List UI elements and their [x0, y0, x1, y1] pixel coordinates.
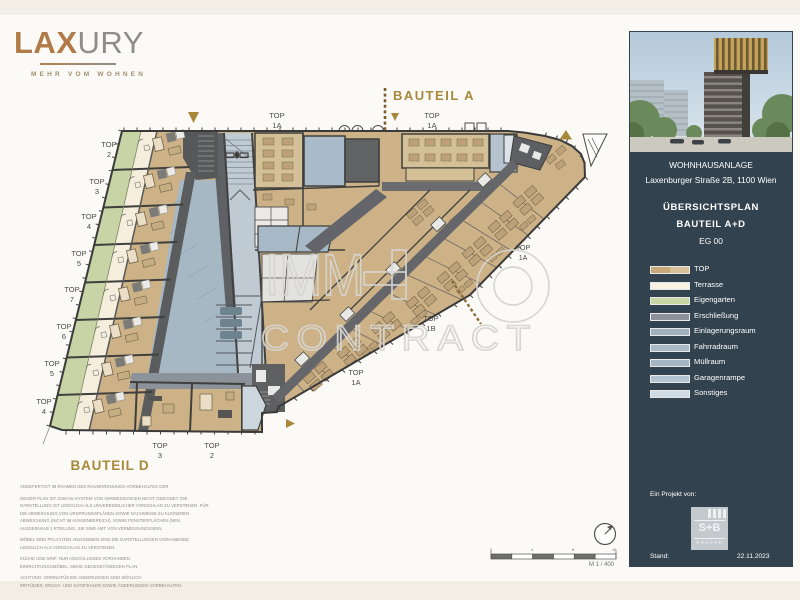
svg-text:2: 2 [107, 150, 111, 159]
svg-text:8: 8 [572, 547, 575, 552]
svg-text:1A: 1A [351, 378, 360, 387]
svg-text:5: 5 [50, 369, 54, 378]
svg-text:TOP: TOP [81, 212, 96, 221]
svg-text:4: 4 [42, 407, 46, 416]
svg-text:TOP: TOP [101, 140, 116, 149]
svg-text:TOP: TOP [348, 368, 363, 377]
svg-text:16: 16 [612, 547, 617, 552]
svg-text:3: 3 [95, 187, 99, 196]
svg-text:TOP: TOP [269, 111, 284, 120]
svg-text:TOP: TOP [89, 177, 104, 186]
svg-text:CONTRACT: CONTRACT [261, 319, 538, 358]
svg-text:7: 7 [70, 295, 74, 304]
svg-text:5: 5 [77, 259, 81, 268]
svg-text:TOP: TOP [424, 111, 439, 120]
svg-text:BAUTEIL D: BAUTEIL D [71, 458, 150, 473]
svg-text:3: 3 [158, 451, 162, 460]
svg-text:0: 0 [490, 547, 493, 552]
svg-text:4: 4 [87, 222, 91, 231]
svg-text:TOP: TOP [44, 359, 59, 368]
svg-text:TOP: TOP [36, 397, 51, 406]
svg-text:TOP: TOP [71, 249, 86, 258]
svg-text:IMM: IMM [265, 243, 365, 308]
svg-text:1A: 1A [272, 121, 281, 130]
svg-text:BAUTEIL A: BAUTEIL A [393, 88, 475, 103]
svg-text:TOP: TOP [56, 322, 71, 331]
svg-text:TOP: TOP [64, 285, 79, 294]
svg-text:1A: 1A [519, 255, 528, 262]
svg-text:4: 4 [531, 547, 534, 552]
svg-text:M 1 / 400: M 1 / 400 [589, 562, 615, 568]
svg-text:1A: 1A [427, 121, 436, 130]
svg-text:TOP: TOP [204, 441, 219, 450]
svg-text:2: 2 [210, 451, 214, 460]
svg-text:TOP: TOP [152, 441, 167, 450]
svg-text:6: 6 [62, 332, 66, 341]
